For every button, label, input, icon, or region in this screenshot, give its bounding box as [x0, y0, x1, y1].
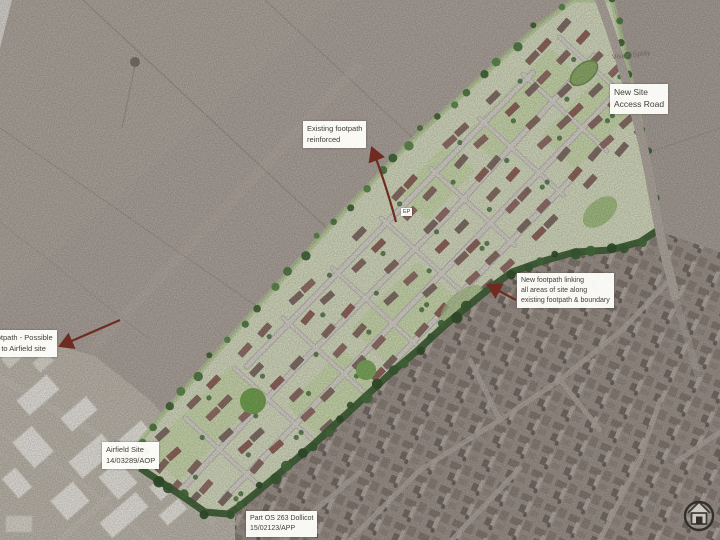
annotation-line: Airfield Site — [106, 445, 155, 456]
house-logo-icon — [685, 502, 713, 530]
annotation-line: link to Airfield site — [0, 344, 53, 355]
annotation-ep-marker: EP — [401, 208, 412, 216]
annotation-line: Access Road — [614, 99, 664, 111]
annotation-line: reinforced — [307, 135, 362, 146]
annotation-airfield-site: Airfield Site 14/03289/AOP — [102, 442, 159, 469]
annotation-line: 14/03289/AOP — [106, 456, 155, 467]
masterplan-screenshot: Existing footpath reinforced Vision Spla… — [0, 0, 720, 540]
annotation-line: all areas of site along — [521, 286, 610, 296]
annotation-line: New Site — [614, 87, 664, 99]
annotation-part-os: Part OS 263 Dollicot 15/02123/APP — [246, 511, 317, 537]
annotation-new-footpath: New footpath linking all areas of site a… — [517, 273, 614, 308]
annotation-line: 15/02123/APP — [250, 524, 313, 534]
annotation-line: Part OS 263 Dollicot — [250, 514, 313, 524]
annotation-line: Existing footpath — [307, 124, 362, 135]
annotation-existing-footpath: Existing footpath reinforced — [303, 121, 366, 148]
annotation-line: Footpath - Possible — [0, 333, 53, 344]
annotation-airfield-link: Footpath - Possible link to Airfield sit… — [0, 330, 57, 357]
annotation-line: New footpath linking — [521, 276, 610, 286]
annotation-new-site-access-road: New Site Access Road — [610, 84, 668, 114]
annotation-line: existing footpath & boundary — [521, 296, 610, 306]
